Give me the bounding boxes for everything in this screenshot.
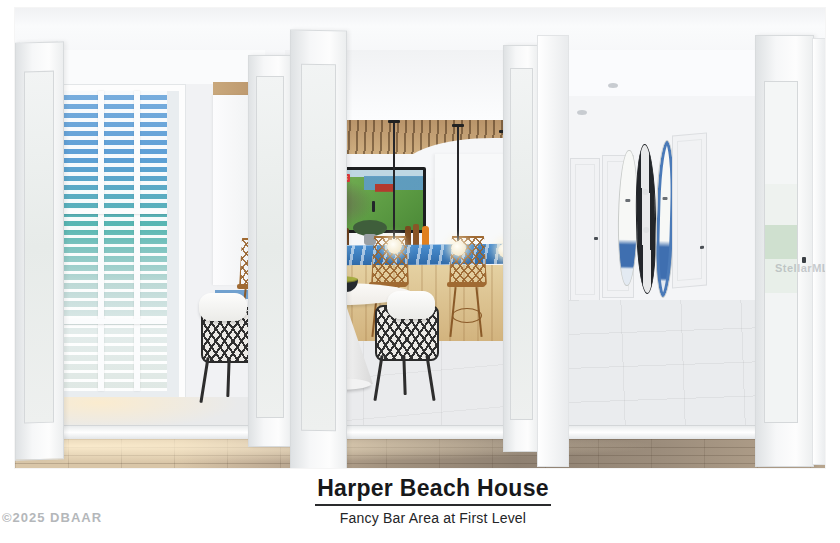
pendant-cord [393,123,395,239]
window-view-shutter-slats [64,91,167,391]
surfboard-fin-box [642,189,648,195]
door-panel-inset [575,164,595,295]
pendant-globe [451,241,466,256]
door-glass-pane [256,76,284,418]
window-mullion [98,91,104,391]
golfer-silhouette [372,201,375,212]
open-door-panel [503,45,539,452]
window-mullion [134,91,140,391]
door-glass-pane [24,71,54,424]
chair-leg [226,357,230,397]
chair-leg [199,357,209,403]
open-door-panel [290,30,347,468]
open-door-panel [755,35,814,467]
door-handle [594,237,598,240]
open-door-edge [812,38,825,465]
dining-chair [371,289,441,399]
surfboard-fin-box [643,227,649,233]
pendant-light [386,120,402,255]
stool-seat [447,282,485,287]
door-threshold-track [15,425,825,440]
pendant-light [450,124,466,257]
open-door-edge [537,35,569,467]
surfboard-mount [662,197,667,200]
recessed-light [608,83,618,88]
caption-divider [315,504,551,506]
surfboard-mount [625,199,630,202]
door-glass-pane [764,81,798,423]
window-rail [64,209,167,214]
chair-cushion [199,293,247,321]
photo-caption: Harper Beach House Fancy Bar Area at Fir… [0,476,840,526]
bottle [413,224,419,245]
pendant-cord [457,127,459,241]
surfboard [635,144,658,294]
copyright-watermark: ©2025 DBAAR [2,510,102,525]
door-handle [700,246,704,249]
door-panel-inset [677,139,702,281]
stool-footrest [452,308,482,323]
listing-photo-page: LIVE [0,0,840,543]
door-glass-pane [301,64,336,432]
chair-cushion [387,291,435,319]
shuttered-window [58,85,185,409]
property-title: Harper Beach House [26,476,840,501]
pendant-globe [387,239,402,254]
door-glass-pane [510,68,533,420]
bottle [422,226,429,245]
hallway-door [570,158,600,302]
window-rail [64,319,167,324]
foreground-wood-floor [15,439,825,468]
sunroom-ceiling [43,50,265,84]
interior-photo: LIVE [15,8,825,468]
open-door-panel [15,41,64,460]
open-door-panel [248,55,292,447]
recessed-light [577,110,587,115]
chair-leg [425,355,435,401]
hallway-door [672,132,707,288]
chair-leg [373,355,383,401]
mls-watermark: StellarMLS [775,262,825,274]
photo-subtitle: Fancy Bar Area at First Level [26,510,840,526]
